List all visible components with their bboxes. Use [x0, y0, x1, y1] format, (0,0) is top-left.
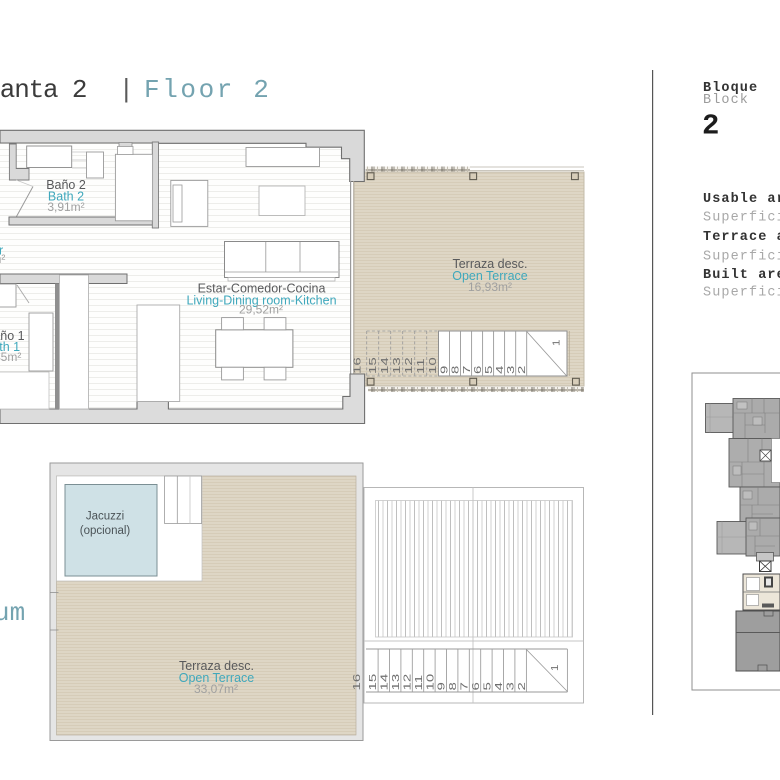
svg-text:7: 7	[460, 366, 472, 374]
svg-text:|: |	[119, 75, 135, 105]
svg-text:2: 2	[702, 110, 719, 143]
svg-text:8: 8	[449, 366, 461, 374]
svg-text:Block: Block	[703, 93, 749, 108]
svg-text:14: 14	[378, 674, 390, 691]
svg-text:8: 8	[447, 682, 459, 690]
svg-text:3,50m²: 3,50m²	[0, 252, 5, 266]
svg-text:12: 12	[403, 357, 415, 374]
svg-text:3,91m²: 3,91m²	[47, 200, 84, 214]
svg-text:13: 13	[391, 357, 403, 374]
svg-text:15: 15	[367, 357, 379, 374]
svg-text:2: 2	[515, 366, 527, 374]
svg-text:Floor 2: Floor 2	[144, 75, 271, 105]
svg-text:2: 2	[515, 682, 527, 690]
svg-text:Superficie útil: Superficie útil	[703, 211, 780, 226]
svg-text:Usable area: Usable area	[703, 192, 780, 207]
svg-text:10: 10	[424, 674, 436, 691]
svg-text:4: 4	[493, 366, 505, 374]
svg-text:9: 9	[435, 682, 447, 690]
svg-text:15: 15	[367, 674, 379, 691]
svg-text:11: 11	[415, 358, 427, 374]
svg-text:Jacuzzi: Jacuzzi	[86, 511, 124, 523]
svg-text:11: 11	[412, 675, 424, 691]
svg-text:33,07m²: 33,07m²	[194, 682, 238, 696]
svg-text:5: 5	[481, 682, 493, 690]
svg-text:3,45m²: 3,45m²	[0, 350, 21, 364]
svg-text:29,52m²: 29,52m²	[239, 303, 283, 317]
svg-text:Superficie terraza: Superficie terraza	[703, 250, 780, 265]
svg-text:Superficie construida: Superficie construida	[703, 286, 780, 301]
svg-text:16,93m²: 16,93m²	[468, 280, 512, 294]
svg-text:(opcional): (opcional)	[80, 525, 131, 537]
svg-text:6: 6	[470, 682, 482, 690]
svg-text:9: 9	[438, 366, 450, 374]
svg-text:3: 3	[504, 366, 516, 374]
svg-text:Planta 2: Planta 2	[0, 75, 86, 105]
svg-text:14: 14	[379, 357, 391, 374]
svg-text:13: 13	[389, 674, 401, 691]
svg-text:1: 1	[549, 665, 560, 671]
svg-text:Built area: Built area	[703, 268, 780, 283]
svg-text:7: 7	[458, 682, 470, 690]
svg-text:10: 10	[427, 357, 439, 374]
svg-text:Terrace area: Terrace area	[703, 230, 780, 245]
svg-text:Solarium: Solarium	[0, 598, 25, 628]
svg-text:16: 16	[351, 674, 363, 691]
svg-text:6: 6	[471, 366, 483, 374]
svg-text:1: 1	[551, 340, 562, 346]
svg-text:4: 4	[493, 682, 505, 690]
svg-text:3: 3	[504, 682, 516, 690]
svg-text:16: 16	[351, 357, 363, 374]
svg-text:5: 5	[482, 366, 494, 374]
svg-text:12: 12	[401, 674, 413, 691]
